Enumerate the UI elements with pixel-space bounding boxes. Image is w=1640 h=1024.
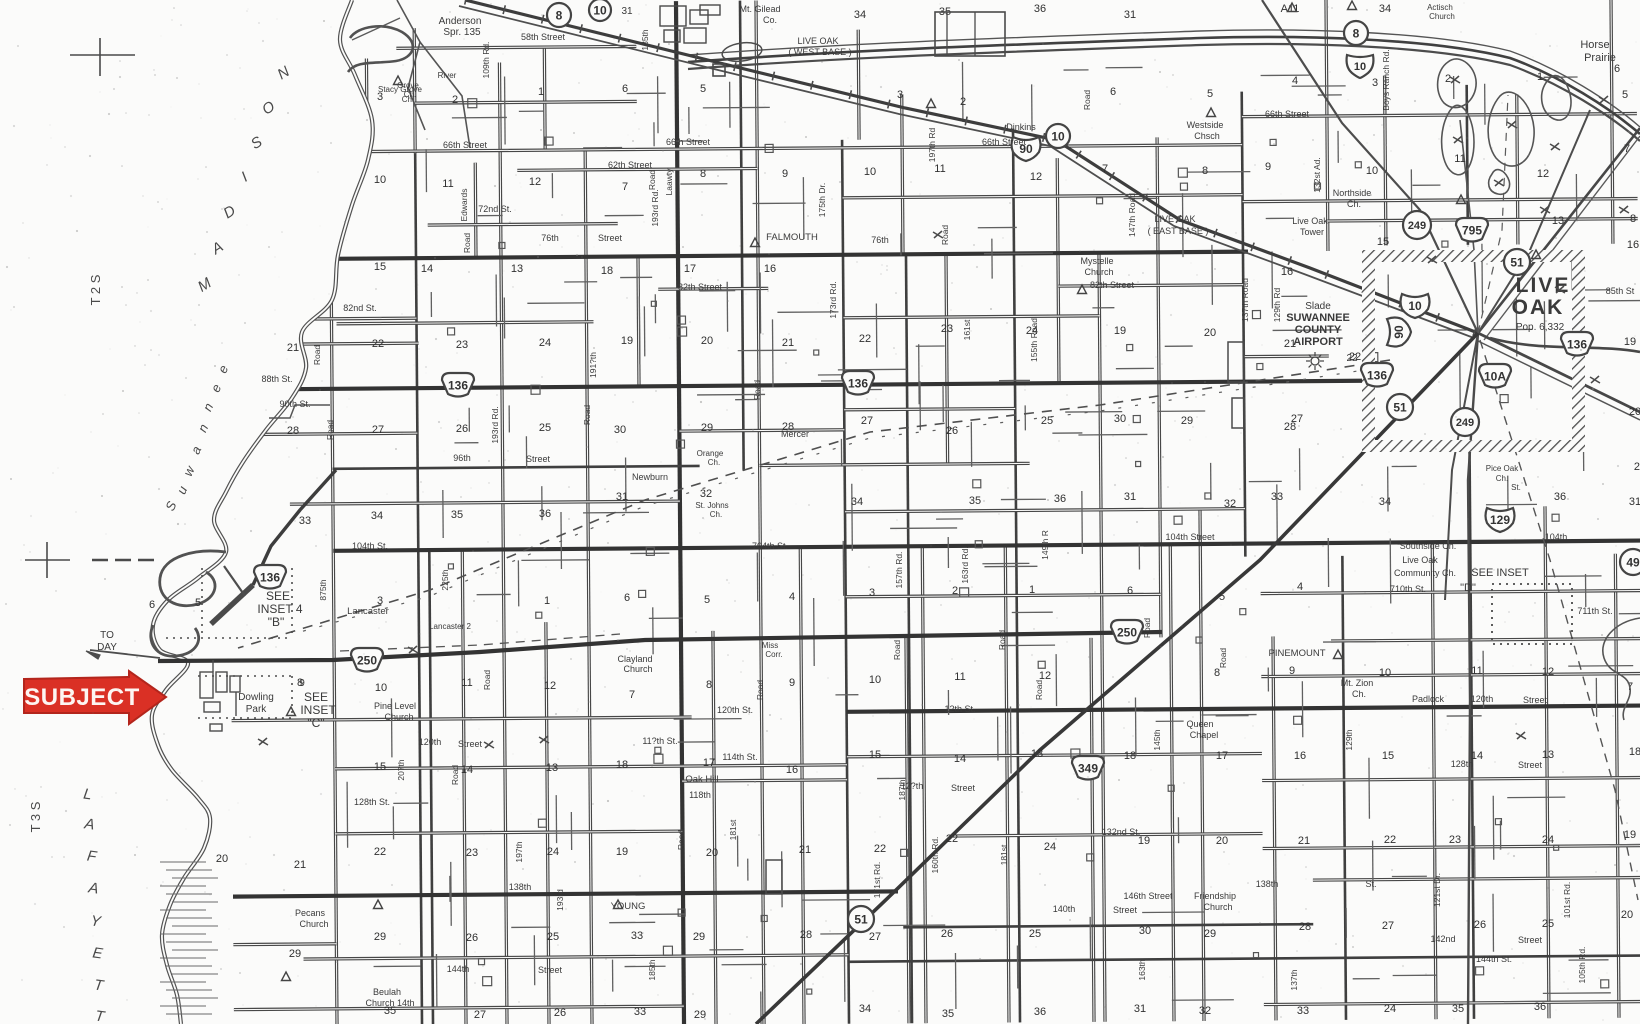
svg-text:163rd Rd.: 163rd Rd. xyxy=(960,546,970,583)
svg-text:PINEMOUNT: PINEMOUNT xyxy=(1269,648,1326,659)
svg-text:58th Street: 58th Street xyxy=(521,32,566,42)
svg-text:10A: 10A xyxy=(1484,370,1506,384)
svg-text:161st: 161st xyxy=(962,319,972,340)
svg-text:27: 27 xyxy=(474,1009,486,1021)
svg-text:14: 14 xyxy=(461,764,473,776)
svg-text:137th Road: 137th Road xyxy=(1240,278,1250,322)
svg-text:51: 51 xyxy=(854,912,868,926)
svg-text:17: 17 xyxy=(1216,750,1228,762)
svg-text:TO: TO xyxy=(100,630,114,641)
svg-text:104th St.: 104th St. xyxy=(352,541,388,551)
svg-text:76th: 76th xyxy=(541,233,559,243)
svg-text:Co.: Co. xyxy=(763,15,777,25)
svg-text:36: 36 xyxy=(1034,3,1046,15)
svg-text:10: 10 xyxy=(593,3,607,17)
svg-text:21: 21 xyxy=(799,844,811,856)
svg-text:51: 51 xyxy=(1393,400,1407,414)
svg-text:10: 10 xyxy=(374,174,386,186)
svg-text:Horse: Horse xyxy=(1580,39,1609,51)
svg-text:23: 23 xyxy=(466,847,478,859)
svg-text:197th Rd: 197th Rd xyxy=(927,127,937,162)
svg-text:76th: 76th xyxy=(871,235,889,245)
svg-text:Dinkins: Dinkins xyxy=(1006,122,1036,132)
svg-text:17: 17 xyxy=(684,263,696,275)
svg-text:104th Street: 104th Street xyxy=(1165,532,1215,542)
svg-text:35: 35 xyxy=(451,509,463,521)
svg-text:1: 1 xyxy=(538,86,544,98)
svg-text:15: 15 xyxy=(374,761,386,773)
svg-text:24: 24 xyxy=(547,846,559,858)
svg-text:28: 28 xyxy=(800,929,812,941)
svg-text:Road: Road xyxy=(676,830,686,851)
svg-text:( WEST BASE ): ( WEST BASE ) xyxy=(788,47,851,57)
svg-text:SUBJECT: SUBJECT xyxy=(24,684,140,711)
svg-text:26: 26 xyxy=(456,423,468,435)
svg-text:T 2 S: T 2 S xyxy=(88,274,103,305)
svg-text:14: 14 xyxy=(421,263,433,275)
svg-text:3: 3 xyxy=(1372,77,1378,89)
svg-text:Live Oak: Live Oak xyxy=(1292,216,1328,226)
svg-text:16: 16 xyxy=(1294,750,1306,762)
svg-text:27: 27 xyxy=(372,424,384,436)
svg-text:12: 12 xyxy=(1030,171,1042,183)
svg-text:88th St.: 88th St. xyxy=(261,374,292,384)
svg-text:16: 16 xyxy=(1281,266,1293,278)
svg-text:8: 8 xyxy=(706,679,712,691)
svg-text:7: 7 xyxy=(622,181,628,193)
svg-text:21: 21 xyxy=(1298,835,1310,847)
svg-text:90: 90 xyxy=(1392,325,1406,339)
svg-text:Live Oak: Live Oak xyxy=(1402,555,1438,565)
svg-text:Southside Ch.: Southside Ch. xyxy=(1400,541,1457,551)
svg-text:146th Street: 146th Street xyxy=(1123,891,1173,901)
svg-text:5: 5 xyxy=(1207,88,1213,100)
svg-text:11: 11 xyxy=(1471,665,1482,677)
svg-text:15: 15 xyxy=(869,749,881,761)
svg-text:22: 22 xyxy=(1349,351,1361,363)
svg-text:21: 21 xyxy=(287,342,299,354)
svg-text:20: 20 xyxy=(1629,406,1640,418)
svg-text:22: 22 xyxy=(874,843,886,855)
svg-text:136: 136 xyxy=(260,571,280,585)
svg-text:29: 29 xyxy=(701,422,713,434)
svg-text:29: 29 xyxy=(1181,415,1193,427)
svg-text:118th: 118th xyxy=(689,790,711,800)
svg-text:2: 2 xyxy=(452,94,458,106)
svg-text:SEE INSET: SEE INSET xyxy=(1471,567,1529,579)
svg-text:193rd Rd.: 193rd Rd. xyxy=(650,189,660,226)
svg-text:22: 22 xyxy=(1384,834,1396,846)
svg-text:6: 6 xyxy=(1127,585,1133,597)
svg-text:15: 15 xyxy=(374,261,386,273)
svg-text:22: 22 xyxy=(374,846,386,858)
svg-text:8: 8 xyxy=(297,677,303,689)
svg-text:3: 3 xyxy=(897,89,903,101)
svg-text:Ch.: Ch. xyxy=(1347,199,1361,209)
svg-text:129th: 129th xyxy=(1344,729,1354,751)
svg-text:25: 25 xyxy=(1542,918,1554,930)
svg-text:29: 29 xyxy=(289,948,301,960)
svg-text:DAY: DAY xyxy=(97,642,117,653)
svg-text:20: 20 xyxy=(701,335,713,347)
svg-text:34: 34 xyxy=(1379,496,1391,508)
svg-text:120th: 120th xyxy=(1471,694,1494,704)
svg-text:22: 22 xyxy=(946,833,958,845)
svg-text:Church: Church xyxy=(1203,902,1232,912)
svg-text:St.: St. xyxy=(1511,483,1521,492)
svg-text:Prairie: Prairie xyxy=(1584,52,1616,64)
svg-text:Church: Church xyxy=(623,664,652,674)
svg-text:Pecans: Pecans xyxy=(295,908,326,918)
svg-text:185th: 185th xyxy=(640,29,650,51)
svg-text:10: 10 xyxy=(864,166,876,178)
svg-text:7: 7 xyxy=(629,689,635,701)
svg-text:11: 11 xyxy=(442,178,453,190)
svg-text:Anderson: Anderson xyxy=(439,16,482,27)
svg-text:24: 24 xyxy=(1044,841,1056,853)
svg-text:349: 349 xyxy=(1078,762,1098,776)
svg-text:Road: Road xyxy=(582,405,592,426)
svg-text:181st: 181st xyxy=(999,844,1009,865)
svg-text:20: 20 xyxy=(216,853,228,865)
svg-text:15: 15 xyxy=(1377,236,1389,248)
svg-text:138th: 138th xyxy=(1256,879,1279,889)
svg-text:Road: Road xyxy=(1218,648,1228,669)
svg-text:72nd St.: 72nd St. xyxy=(478,204,512,214)
svg-text:Actisch: Actisch xyxy=(1427,3,1453,12)
svg-text:A: A xyxy=(82,815,95,833)
svg-text:Pop. 6,332: Pop. 6,332 xyxy=(1516,322,1565,333)
svg-text:Newburn: Newburn xyxy=(632,472,668,482)
svg-text:8: 8 xyxy=(1353,26,1360,40)
svg-text:Road: Road xyxy=(462,233,472,254)
svg-text:24: 24 xyxy=(539,337,551,349)
svg-text:8: 8 xyxy=(1630,213,1636,225)
svg-text:21: 21 xyxy=(782,337,794,349)
svg-text:20: 20 xyxy=(1204,327,1216,339)
svg-text:11: 11 xyxy=(954,671,965,683)
svg-text:33: 33 xyxy=(1271,491,1283,503)
svg-text:St. Johns: St. Johns xyxy=(695,501,728,510)
svg-text:35: 35 xyxy=(969,495,981,507)
svg-text:12: 12 xyxy=(1542,666,1554,678)
svg-text:32: 32 xyxy=(1199,1005,1211,1017)
svg-text:32: 32 xyxy=(700,488,712,500)
svg-text:90th St.: 90th St. xyxy=(279,399,310,409)
svg-text:22: 22 xyxy=(859,333,871,345)
svg-text:28: 28 xyxy=(287,425,299,437)
svg-text:Tower: Tower xyxy=(1300,227,1324,237)
svg-text:Chsch: Chsch xyxy=(1194,131,1220,141)
svg-text:6: 6 xyxy=(149,599,155,611)
svg-text:8: 8 xyxy=(1214,667,1220,679)
svg-text:19: 19 xyxy=(1624,336,1636,348)
svg-text:Road: Road xyxy=(312,345,322,366)
svg-text:36: 36 xyxy=(1554,491,1566,503)
svg-text:4: 4 xyxy=(1297,581,1303,593)
svg-text:8: 8 xyxy=(1202,165,1208,177)
svg-text:( EAST BASE ): ( EAST BASE ) xyxy=(1148,226,1209,236)
svg-text:32: 32 xyxy=(1224,498,1236,510)
svg-text:6: 6 xyxy=(1614,63,1620,75)
svg-text:875th: 875th xyxy=(318,579,328,601)
svg-text:29: 29 xyxy=(1204,928,1216,940)
svg-text:14: 14 xyxy=(1471,750,1483,762)
svg-text:Spr. 135: Spr. 135 xyxy=(443,27,481,38)
svg-text:11: 11 xyxy=(1454,153,1465,165)
svg-text:66th Street: 66th Street xyxy=(1265,109,1310,119)
svg-text:160th Rd.: 160th Rd. xyxy=(930,837,940,874)
svg-text:Friendship: Friendship xyxy=(1194,891,1236,901)
svg-text:20: 20 xyxy=(1216,835,1228,847)
svg-text:27: 27 xyxy=(1382,920,1394,932)
svg-text:25: 25 xyxy=(1029,928,1041,940)
svg-text:19: 19 xyxy=(621,335,633,347)
svg-text:82th Street: 82th Street xyxy=(678,282,723,292)
svg-text:29: 29 xyxy=(693,931,705,943)
svg-text:136: 136 xyxy=(1367,369,1387,383)
svg-text:19: 19 xyxy=(1624,829,1636,841)
svg-text:LIVE: LIVE xyxy=(1516,274,1571,297)
svg-text:20: 20 xyxy=(1621,909,1633,921)
svg-text:30: 30 xyxy=(1114,413,1126,425)
svg-text:18: 18 xyxy=(601,265,613,277)
svg-text:66th Street: 66th Street xyxy=(443,140,488,150)
svg-text:62th Street: 62th Street xyxy=(608,160,653,170)
svg-text:12: 12 xyxy=(544,680,556,692)
svg-text:13: 13 xyxy=(1552,215,1564,227)
svg-text:Ch.: Ch. xyxy=(710,510,722,519)
svg-text:30: 30 xyxy=(1139,925,1151,937)
svg-text:27: 27 xyxy=(861,415,873,427)
svg-text:INSET 4: INSET 4 xyxy=(257,602,302,616)
svg-text:25: 25 xyxy=(1041,415,1053,427)
svg-text:31: 31 xyxy=(1629,496,1640,508)
svg-text:T 3 S: T 3 S xyxy=(28,801,43,832)
svg-text:193rd: 193rd xyxy=(555,889,565,911)
svg-text:138th: 138th xyxy=(509,882,532,892)
svg-text:35: 35 xyxy=(942,1008,954,1020)
svg-text:4: 4 xyxy=(789,591,795,603)
svg-text:9: 9 xyxy=(782,168,788,180)
svg-text:17: 17 xyxy=(703,757,715,769)
svg-text:175th Dr.: 175th Dr. xyxy=(817,183,827,218)
svg-text:11: 11 xyxy=(461,677,472,689)
svg-text:COUNTY: COUNTY xyxy=(1295,324,1342,336)
svg-text:24: 24 xyxy=(1542,834,1554,846)
svg-text:Corr.: Corr. xyxy=(765,650,782,659)
svg-text:Road: Road xyxy=(940,225,950,246)
svg-text:31: 31 xyxy=(1124,491,1136,503)
svg-text:22: 22 xyxy=(372,338,384,350)
svg-text:Boys Ranch Rd.: Boys Ranch Rd. xyxy=(1381,49,1391,110)
svg-text:140th: 140th xyxy=(1053,904,1076,914)
svg-text:Road: Road xyxy=(892,640,902,661)
svg-text:207th: 207th xyxy=(396,759,406,781)
svg-text:3: 3 xyxy=(869,587,875,599)
svg-text:31: 31 xyxy=(621,6,633,17)
svg-text:9: 9 xyxy=(1265,161,1271,173)
svg-text:Laawty: Laawty xyxy=(664,168,674,196)
svg-text:Slade: Slade xyxy=(1305,301,1331,312)
svg-text:9: 9 xyxy=(789,677,795,689)
svg-text:Street: Street xyxy=(1518,760,1543,770)
svg-text:10: 10 xyxy=(375,682,387,694)
svg-text:INSET: INSET xyxy=(300,703,336,717)
svg-text:185th: 185th xyxy=(647,959,657,981)
svg-text:795: 795 xyxy=(1462,224,1482,238)
svg-text:8: 8 xyxy=(556,8,563,22)
svg-text:34: 34 xyxy=(371,510,383,522)
svg-text:Mt. Gilead: Mt. Gilead xyxy=(739,4,780,14)
svg-text:34: 34 xyxy=(859,1003,871,1015)
svg-text:132nd St.: 132nd St. xyxy=(1102,827,1141,837)
svg-text:Road: Road xyxy=(325,420,335,441)
svg-text:24: 24 xyxy=(1384,1003,1396,1015)
svg-text:SEE: SEE xyxy=(266,589,290,603)
svg-text:191?th: 191?th xyxy=(588,352,598,378)
svg-text:5: 5 xyxy=(700,83,706,95)
svg-text:16: 16 xyxy=(786,764,798,776)
svg-text:13: 13 xyxy=(511,263,523,275)
svg-text:Ch.: Ch. xyxy=(1352,689,1366,699)
svg-text:8: 8 xyxy=(700,168,706,180)
svg-text:Street: Street xyxy=(1113,905,1138,915)
svg-text:"B": "B" xyxy=(268,615,285,629)
svg-text:23: 23 xyxy=(941,323,953,335)
svg-text:34: 34 xyxy=(854,9,866,21)
svg-text:25: 25 xyxy=(547,931,559,943)
svg-text:26: 26 xyxy=(946,425,958,437)
svg-text:34: 34 xyxy=(851,496,863,508)
svg-text:250: 250 xyxy=(357,654,377,668)
svg-text:136: 136 xyxy=(848,377,868,391)
svg-text:Lancaster 2: Lancaster 2 xyxy=(429,622,471,631)
svg-text:Road: Road xyxy=(482,670,492,691)
svg-text:114th St.: 114th St. xyxy=(722,752,757,762)
svg-text:Road: Road xyxy=(997,630,1007,651)
svg-text:128th: 128th xyxy=(1451,759,1474,769)
svg-text:149th R: 149th R xyxy=(1040,530,1050,560)
svg-text:36: 36 xyxy=(1034,1006,1046,1018)
svg-text:12: 12 xyxy=(529,176,541,188)
svg-text:25: 25 xyxy=(539,422,551,434)
svg-text:33: 33 xyxy=(1297,1005,1309,1017)
svg-text:"D": "D" xyxy=(1460,582,1476,594)
svg-text:Ch.: Ch. xyxy=(402,95,414,104)
svg-text:120th St.: 120th St. xyxy=(717,705,753,715)
svg-text:Church: Church xyxy=(1084,267,1113,277)
svg-text:36: 36 xyxy=(539,508,551,520)
svg-text:31: 31 xyxy=(1134,1003,1146,1015)
svg-text:249: 249 xyxy=(1408,220,1426,232)
svg-text:5: 5 xyxy=(195,597,201,609)
svg-text:Street: Street xyxy=(538,965,563,975)
svg-text:33: 33 xyxy=(631,930,643,942)
svg-text:82nd St.: 82nd St. xyxy=(343,303,377,313)
svg-text:11: 11 xyxy=(934,163,945,175)
svg-text:18: 18 xyxy=(616,759,628,771)
svg-text:147th Road: 147th Road xyxy=(1127,193,1137,237)
svg-text:Ch.: Ch. xyxy=(708,458,720,467)
svg-text:109th Rd.: 109th Rd. xyxy=(481,42,491,79)
svg-text:Road: Road xyxy=(1082,90,1092,111)
svg-text:Road: Road xyxy=(1142,618,1152,639)
svg-text:Church: Church xyxy=(1429,12,1455,21)
svg-text:Westside: Westside xyxy=(1187,120,1224,130)
svg-text:6: 6 xyxy=(1110,86,1116,98)
svg-text:11?th St.: 11?th St. xyxy=(642,736,677,746)
svg-text:St.: St. xyxy=(1365,879,1376,889)
svg-text:10: 10 xyxy=(1354,61,1366,73)
svg-text:19: 19 xyxy=(1114,325,1126,337)
svg-text:A11: A11 xyxy=(1281,3,1300,15)
svg-text:15: 15 xyxy=(1382,750,1394,762)
svg-text:1: 1 xyxy=(1029,584,1035,596)
svg-text:Pine Level: Pine Level xyxy=(374,701,416,711)
svg-text:136: 136 xyxy=(448,379,468,393)
svg-text:18: 18 xyxy=(1629,746,1640,758)
svg-text:Ch.: Ch. xyxy=(1496,474,1508,483)
svg-text:7: 7 xyxy=(1624,143,1630,155)
svg-text:12: 12 xyxy=(1537,168,1549,180)
svg-text:27: 27 xyxy=(1291,413,1303,425)
svg-text:LIVE OAK: LIVE OAK xyxy=(1154,214,1195,224)
svg-text:36: 36 xyxy=(1054,493,1066,505)
svg-text:6: 6 xyxy=(624,592,630,604)
svg-text:3: 3 xyxy=(377,595,383,607)
svg-text:28: 28 xyxy=(1299,921,1311,933)
svg-text:66th Street: 66th Street xyxy=(982,137,1027,147)
svg-text:29: 29 xyxy=(1634,461,1640,473)
svg-text:24: 24 xyxy=(1026,325,1038,337)
svg-text:129th Rd: 129th Rd xyxy=(1272,287,1282,322)
svg-text:Road: Road xyxy=(755,680,765,701)
svg-text:9: 9 xyxy=(1289,665,1295,677)
svg-text:21: 21 xyxy=(1284,338,1296,350)
svg-text:129: 129 xyxy=(1490,513,1510,527)
svg-text:Queen: Queen xyxy=(1186,719,1213,729)
svg-text:144th: 144th xyxy=(447,964,470,974)
svg-text:710th St.: 710th St. xyxy=(1390,584,1426,594)
svg-text:River: River xyxy=(438,71,457,80)
svg-text:33: 33 xyxy=(299,515,311,527)
svg-text:1: 1 xyxy=(544,595,550,607)
svg-text:Church: Church xyxy=(384,712,413,722)
svg-text:31: 31 xyxy=(1124,9,1136,21)
svg-text:14: 14 xyxy=(954,753,966,765)
svg-text:Beulah: Beulah xyxy=(373,987,401,997)
svg-text:4: 4 xyxy=(1292,75,1298,87)
svg-text:16: 16 xyxy=(1627,239,1639,251)
svg-text:10: 10 xyxy=(869,674,881,686)
svg-text:FALMOUTH: FALMOUTH xyxy=(766,232,818,243)
svg-text:137th: 137th xyxy=(1289,969,1299,991)
svg-text:10: 10 xyxy=(1379,667,1391,679)
svg-text:20: 20 xyxy=(706,847,718,859)
svg-text:13: 13 xyxy=(1031,748,1043,760)
svg-text:6: 6 xyxy=(622,83,628,95)
svg-text:34: 34 xyxy=(1379,3,1391,15)
svg-text:"C": "C" xyxy=(307,716,324,730)
svg-text:121st Dr.: 121st Dr. xyxy=(1432,873,1442,907)
svg-text:Road: Road xyxy=(752,380,762,401)
svg-text:Pice Oak: Pice Oak xyxy=(1486,464,1519,473)
svg-text:Street: Street xyxy=(598,233,623,243)
svg-text:704th St.: 704th St. xyxy=(752,541,788,551)
svg-text:187th: 187th xyxy=(897,779,907,801)
svg-text:66th Street: 66th Street xyxy=(666,137,711,147)
